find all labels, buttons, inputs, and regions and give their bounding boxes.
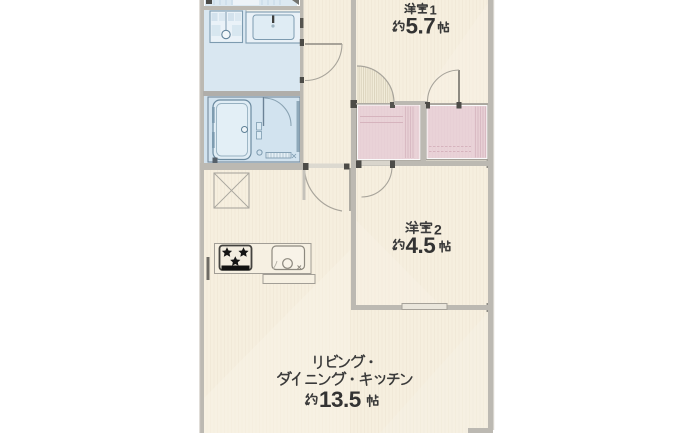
svg-text:4.5: 4.5 [406,233,436,258]
svg-text:5.7: 5.7 [406,14,436,39]
svg-text:13.5: 13.5 [319,387,361,412]
